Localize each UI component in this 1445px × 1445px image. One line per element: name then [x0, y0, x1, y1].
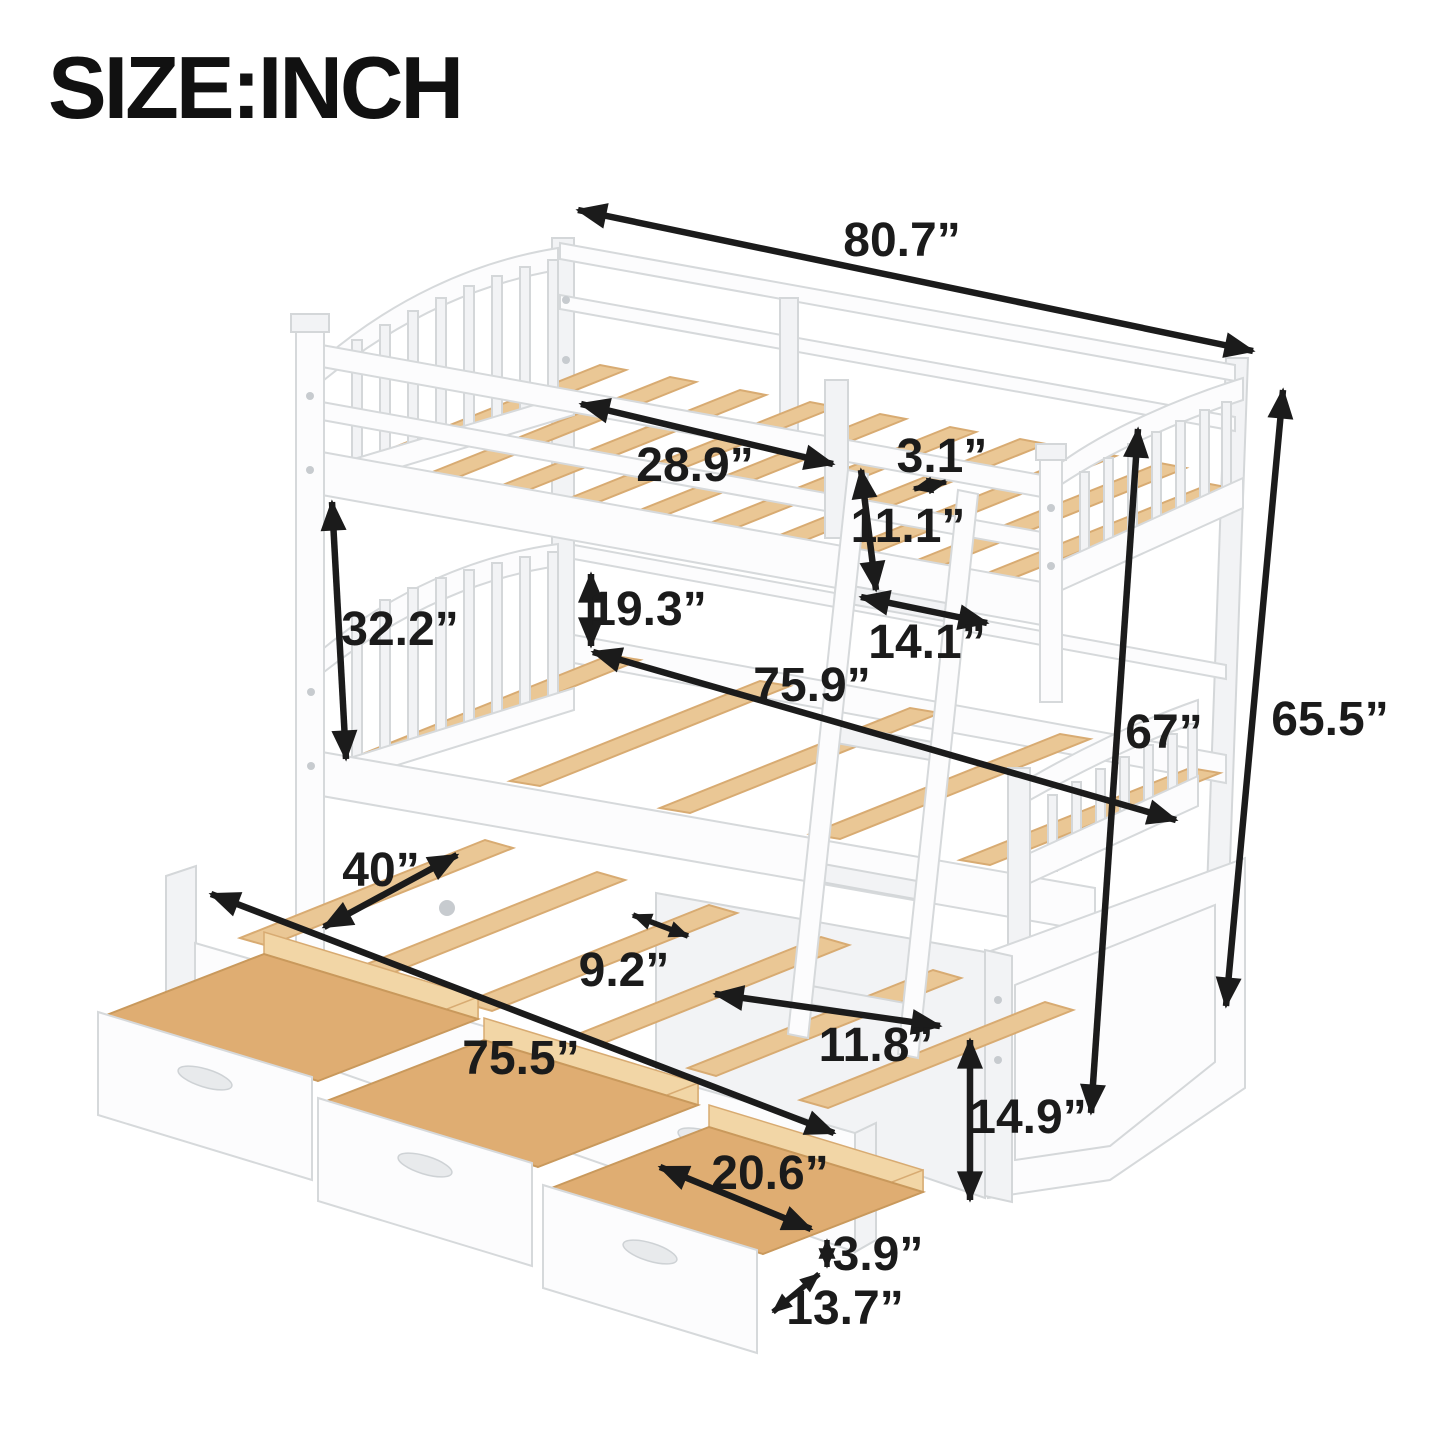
screw	[307, 762, 315, 770]
dim-label-slat-width: 3.1”	[897, 430, 988, 483]
screw	[306, 392, 314, 400]
diagram-canvas: 80.7” 28.9” 3.1” 11.1” 19.3” 32.2” 14.1”…	[0, 0, 1445, 1445]
post	[1040, 452, 1062, 702]
dim-label-lower-bed-length: 75.9”	[753, 659, 870, 712]
spindle	[464, 286, 474, 428]
spindle	[492, 563, 502, 716]
post	[296, 322, 324, 1004]
dim-label-overall-length: 80.7”	[843, 214, 960, 267]
base-corner-stile	[985, 950, 1012, 1202]
dim-label-bunk-gap: 19.3”	[589, 583, 706, 636]
screw	[307, 688, 315, 696]
right-front-post	[1036, 444, 1066, 702]
screw	[562, 296, 570, 304]
spindle	[548, 260, 558, 403]
dim-label-drawer-length: 20.6”	[711, 1147, 828, 1200]
screw	[994, 996, 1002, 1004]
dim-label-trundle-length: 75.5”	[462, 1032, 579, 1085]
spindle	[520, 557, 530, 707]
dim-label-drawer-height: 3.9”	[833, 1228, 924, 1281]
caster-wheel	[439, 900, 455, 916]
screw	[562, 356, 570, 364]
bed-dimension-diagram: 80.7” 28.9” 3.1” 11.1” 19.3” 32.2” 14.1”…	[0, 0, 1445, 1445]
post-cap	[1036, 444, 1066, 460]
dim-label-base-height: 14.9”	[969, 1091, 1086, 1144]
screw	[1047, 562, 1055, 570]
spindle	[548, 552, 558, 698]
screw	[1047, 504, 1055, 512]
dim-label-trundle-pullout: 40”	[342, 844, 419, 897]
dim-label-upper-slat-span: 28.9”	[636, 439, 753, 492]
left-front-post	[291, 314, 329, 1004]
page-title: SIZE:INCH	[48, 38, 461, 137]
dim-label-drawer-depth: 13.7”	[786, 1282, 903, 1335]
dim-label-rail-floor-height: 67”	[1125, 706, 1202, 759]
screw	[994, 1056, 1002, 1064]
spindle	[464, 570, 474, 725]
dim-label-guardrail-height: 11.1”	[851, 500, 966, 553]
screw	[306, 466, 314, 474]
lower-headboard	[324, 544, 574, 788]
spindle	[380, 325, 390, 453]
dim-label-ladder-width: 11.8”	[819, 1019, 934, 1072]
dim-label-overall-height: 65.5”	[1271, 693, 1388, 746]
slat	[660, 708, 940, 813]
dim-label-slat-gap: 9.2”	[579, 944, 670, 997]
post-cap	[291, 314, 329, 332]
bunk-bed-illustration	[98, 238, 1248, 1353]
dim-label-bed-end-width: 14.1”	[868, 616, 985, 669]
dim-label-upper-section-height: 32.2”	[341, 603, 458, 656]
spindle	[436, 578, 446, 734]
